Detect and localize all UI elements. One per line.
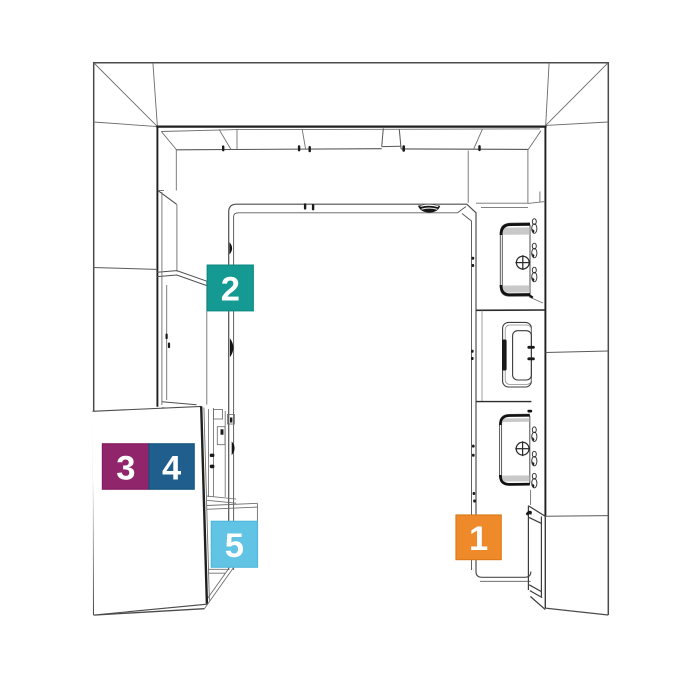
svg-text:1: 1 xyxy=(469,520,488,558)
svg-text:5: 5 xyxy=(225,527,244,565)
svg-text:4: 4 xyxy=(162,449,181,487)
svg-text:3: 3 xyxy=(116,449,135,487)
svg-text:2: 2 xyxy=(221,271,240,309)
